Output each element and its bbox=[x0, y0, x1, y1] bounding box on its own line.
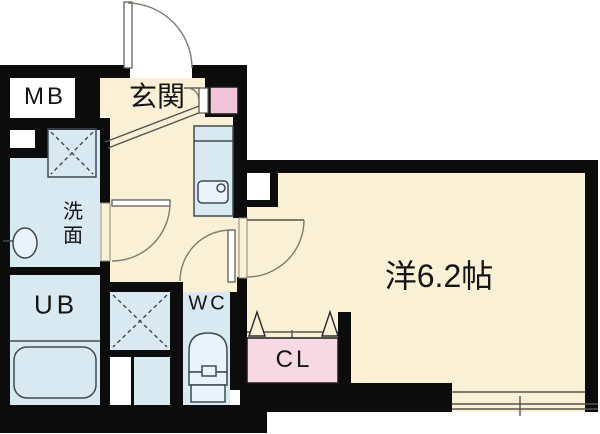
pipe-space-box bbox=[10, 130, 35, 148]
meter-box-label: MB bbox=[24, 83, 66, 111]
main-room-label: 洋6.2帖 bbox=[385, 251, 494, 297]
floor-plan: MB 玄関 洗面 UB WC CL 洋6.2帖 bbox=[0, 0, 600, 434]
closet-label: CL bbox=[276, 346, 313, 374]
main-room-floor-window-strip bbox=[452, 385, 585, 412]
washroom-label: 洗面 bbox=[62, 200, 84, 248]
entrance-door-icon bbox=[124, 2, 192, 68]
pipe-space-floor bbox=[134, 357, 170, 405]
toilet-icon bbox=[189, 333, 227, 402]
entrance-label: 玄関 bbox=[129, 75, 185, 115]
shaft-space bbox=[110, 357, 131, 405]
kitchen-counter-icon bbox=[194, 126, 233, 216]
unit-bath-label: UB bbox=[34, 290, 78, 321]
pipe-space-notch bbox=[247, 173, 270, 200]
wc-label: WC bbox=[188, 293, 227, 316]
